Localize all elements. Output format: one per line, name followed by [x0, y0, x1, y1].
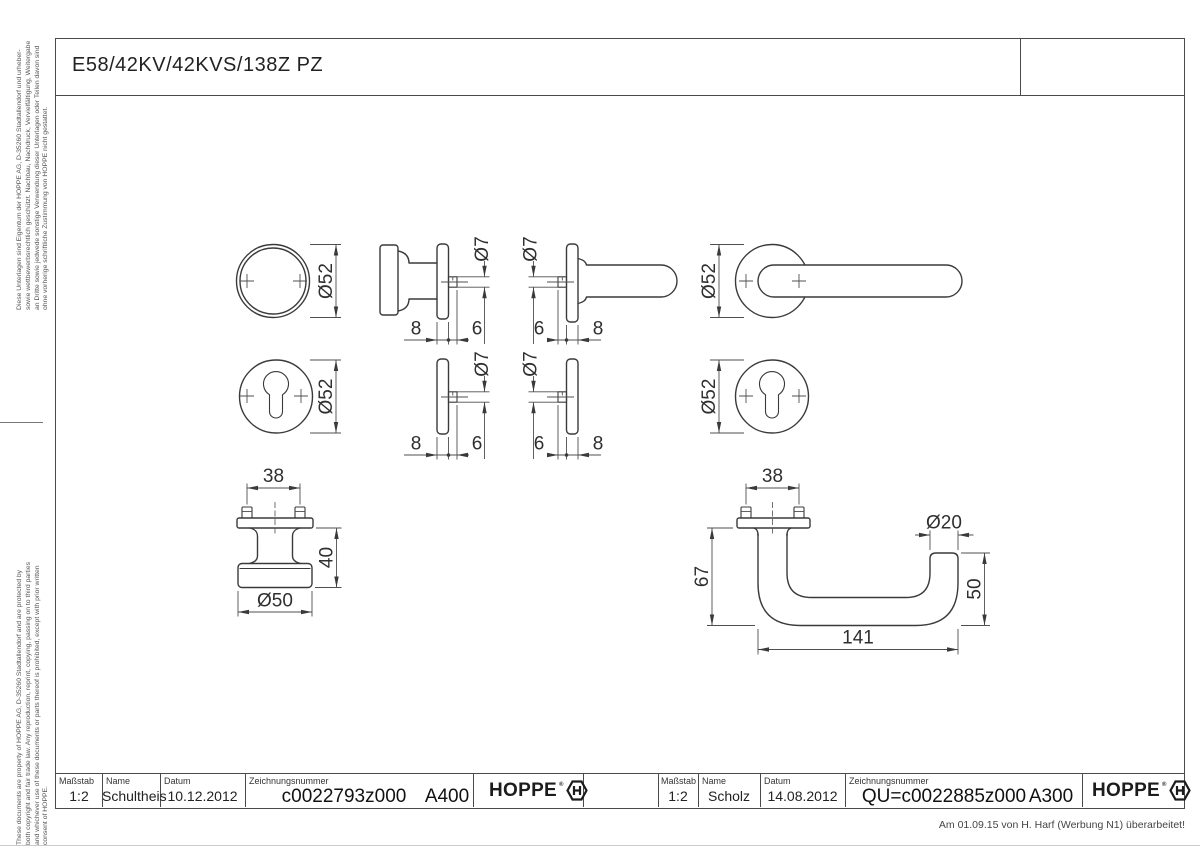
screw-post	[741, 507, 751, 518]
knob-profile-view: 38 40 Ø50	[237, 466, 342, 617]
drawing-sheet: Diese Unterlagen sind Eigentum der HOPPE…	[0, 0, 1200, 849]
dim-spindle-protrusion: 6	[472, 434, 483, 455]
pz-rose-front-view-left: Ø52	[240, 360, 342, 433]
technical-drawing-canvas: Ø52 Ø52 Ø7 8	[0, 0, 1200, 849]
dim-knob-rose-diameter: Ø52	[316, 263, 337, 299]
dim-pz-rose-diameter: Ø52	[316, 379, 337, 415]
dim-lever-length: 141	[842, 628, 874, 649]
dim-knob-diameter: Ø50	[257, 591, 293, 612]
screw-post	[295, 507, 305, 518]
pz-keyhole	[264, 372, 289, 418]
lever-grip	[758, 265, 962, 297]
knob-side-view: Ø7 8 6	[380, 236, 493, 344]
dim-lever-drop: 67	[692, 566, 713, 587]
dim-lever-end-offset: 50	[965, 578, 986, 599]
dim-grip-diameter: Ø20	[926, 513, 962, 534]
dim-rose-thickness: 8	[411, 319, 422, 340]
screw-center-marks	[240, 274, 307, 288]
pz-keyhole	[760, 372, 785, 418]
screw-center-marks	[739, 389, 806, 403]
screw-post	[242, 507, 252, 518]
dim-rose-thickness: 8	[593, 319, 604, 340]
dim-rose-thickness: 8	[411, 434, 422, 455]
screw-center-marks	[240, 389, 308, 403]
dim-pz-rose-diameter: Ø52	[699, 379, 720, 415]
dim-rose-thickness: 8	[593, 434, 604, 455]
dim-spindle-diameter: Ø7	[472, 351, 493, 376]
lever-profile-view: 38 67 Ø20 50 141	[692, 466, 990, 655]
dim-spindle-diameter: Ø7	[521, 236, 542, 261]
rose-side-view-left: Ø7 8 6	[404, 351, 493, 459]
pz-rose-front-view-right: Ø52	[699, 360, 809, 433]
dim-screw-spacing: 38	[762, 466, 783, 487]
knob-front-view: Ø52	[237, 245, 342, 318]
dim-spindle-diameter: Ø7	[472, 236, 493, 261]
dim-spindle-protrusion: 6	[534, 319, 545, 340]
dim-spindle-protrusion: 6	[534, 434, 545, 455]
dim-lever-rose-diameter: Ø52	[699, 263, 720, 299]
lever-side-view: Ø7 6 8	[521, 236, 678, 344]
dim-screw-spacing: 38	[263, 466, 284, 487]
dim-spindle-diameter: Ø7	[521, 351, 542, 376]
dim-knob-projection: 40	[317, 547, 338, 568]
screw-post	[794, 507, 804, 518]
lever-front-view: Ø52	[699, 245, 962, 318]
rose-side-view-right: Ø7 6 8	[521, 351, 604, 459]
dim-spindle-protrusion: 6	[472, 319, 483, 340]
